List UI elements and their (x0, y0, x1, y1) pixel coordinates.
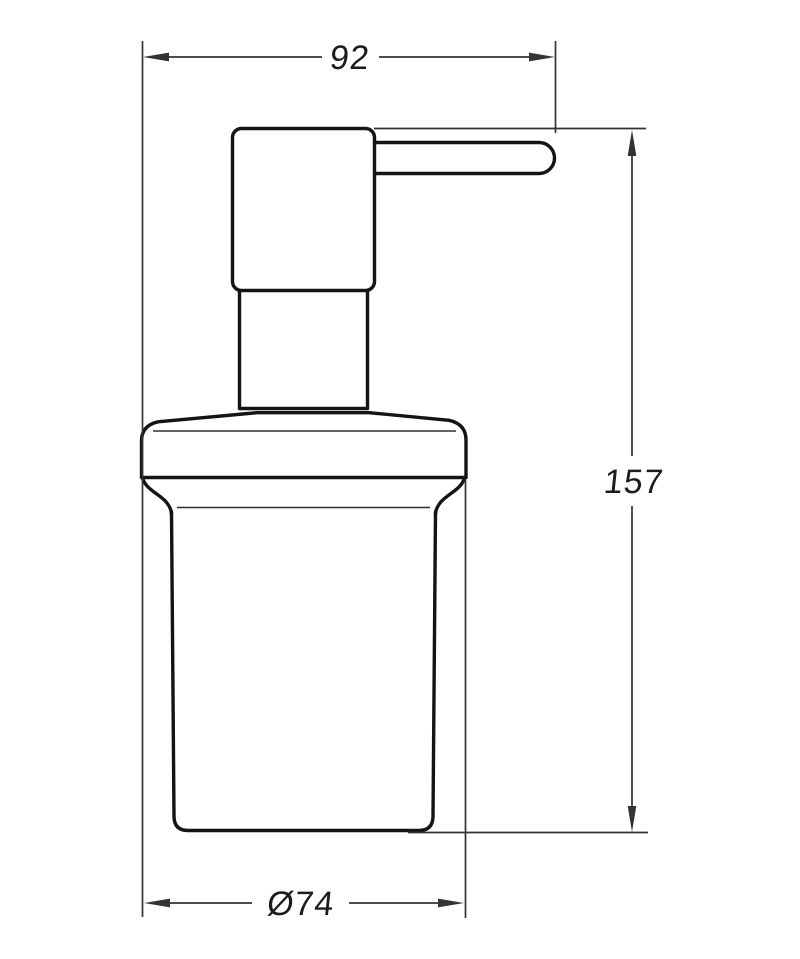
height-arrow-up-icon (628, 130, 637, 156)
width-arrow-left-icon (143, 53, 169, 62)
holder-collar-outline (142, 413, 467, 477)
pump-neck-outline (240, 291, 368, 409)
height-dimension-label: 157 (602, 463, 666, 501)
diameter-arrow-left-icon (144, 899, 170, 908)
diameter-dimension-label: Ø74 (265, 885, 336, 923)
dimension-diameter: Ø74 (144, 479, 466, 923)
pump-head-outline (233, 129, 375, 291)
width-arrow-right-icon (529, 53, 555, 62)
transition-curve-left (143, 478, 172, 514)
technical-drawing-page: 92 157 Ø74 (0, 0, 800, 959)
bottle-body-outline (172, 512, 436, 831)
spout-outline (375, 143, 555, 174)
dispenser-outline-group (142, 129, 555, 831)
dimension-height: 157 (374, 129, 666, 833)
transition-curve-right (436, 478, 465, 514)
height-arrow-down-icon (628, 806, 637, 832)
detail-lines-group (153, 431, 456, 508)
width-dimension-label: 92 (328, 39, 372, 77)
soap-dispenser-dimension-drawing: 92 157 Ø74 (0, 0, 800, 959)
diameter-arrow-right-icon (438, 899, 464, 908)
